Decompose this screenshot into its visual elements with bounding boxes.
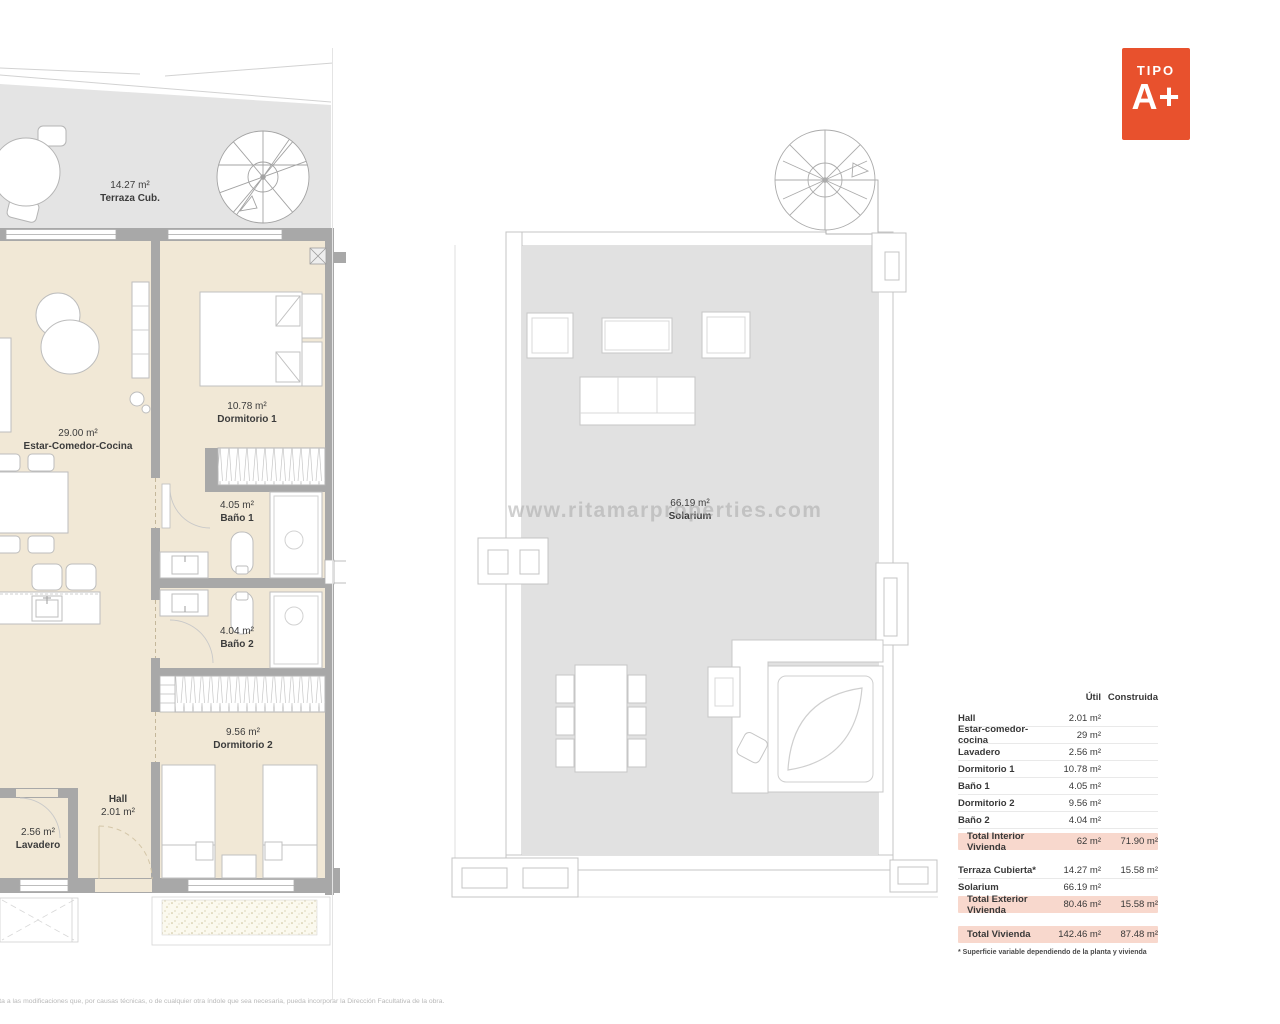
room-name: Dormitorio 2 <box>213 739 272 752</box>
disclaimer-text: jeta a las modificaciones que, por causa… <box>0 998 444 1005</box>
table-row-estar: Estar-comedor-cocina 29 m² <box>958 727 1158 744</box>
jacuzzi-outer <box>768 666 883 792</box>
room-label-bano2: 4.04 m² Baño 2 <box>220 625 254 651</box>
surface-table-header: Útil Construida <box>958 692 1158 705</box>
room-name: Terraza Cub. <box>100 192 160 205</box>
bath-door-leaf <box>162 484 170 528</box>
apartment-plan <box>0 63 346 945</box>
total-exterior-row: Total Exterior Vivienda 80.46 m² 15.58 m… <box>958 896 1158 913</box>
dorm2-wardrobe <box>160 676 325 712</box>
room-name: Estar-Comedor-Cocina <box>24 440 133 453</box>
room-name: Lavadero <box>16 839 60 852</box>
table-row-terraza: Terraza Cubierta* 14.27 m² 15.58 m² <box>958 862 1158 879</box>
col-util: Útil <box>1053 692 1101 705</box>
garden-bed <box>152 897 330 945</box>
type-badge: TIPO A+ <box>1122 48 1190 140</box>
surface-table: Útil Construida Hall 2.01 m² Estar-comed… <box>958 692 1158 956</box>
type-badge-letter: A+ <box>1122 78 1190 116</box>
room-name: Baño 2 <box>220 638 254 651</box>
spiral-stair-terrace <box>217 131 309 223</box>
table-row-dormitorio1: Dormitorio 1 10.78 m² <box>958 761 1158 778</box>
table-row-lavadero: Lavadero 2.56 m² <box>958 744 1158 761</box>
table-row-bano1: Baño 1 4.05 m² <box>958 778 1158 795</box>
room-area: 2.56 m² <box>16 826 60 839</box>
entry-opening <box>95 879 152 892</box>
room-area: 29.00 m² <box>24 427 133 440</box>
lower-terrace <box>0 898 78 942</box>
room-area: 2.01 m² <box>101 806 135 819</box>
room-label-dormitorio2: 9.56 m² Dormitorio 2 <box>213 726 272 752</box>
spiral-stair-solarium <box>775 130 878 234</box>
table-row-dormitorio2: Dormitorio 2 9.56 m² <box>958 795 1158 812</box>
room-label-terraza: 14.27 m² Terraza Cub. <box>100 179 160 205</box>
lavadero-opening <box>16 789 58 797</box>
total-interior-row: Total Interior Vivienda 62 m² 71.90 m² <box>958 833 1158 850</box>
watermark: www.ritamarproperties.com <box>508 499 822 523</box>
table-footnote: * Superficie variable dependiendo de la … <box>958 949 1158 956</box>
room-area: 9.56 m² <box>213 726 272 739</box>
room-area: 14.27 m² <box>100 179 160 192</box>
room-label-hall: Hall 2.01 m² <box>101 793 135 819</box>
total-vivienda-row: Total Vivienda 142.46 m² 87.48 m² <box>958 926 1158 943</box>
table-row-bano2: Baño 2 4.04 m² <box>958 812 1158 829</box>
room-label-lavadero: 2.56 m² Lavadero <box>16 826 60 852</box>
room-name: Dormitorio 1 <box>217 413 276 426</box>
room-area: 4.05 m² <box>220 499 254 512</box>
col-construida: Construida <box>1101 692 1158 705</box>
dorm1-wardrobe <box>218 448 325 485</box>
room-area: 10.78 m² <box>217 400 276 413</box>
shaft-square <box>310 248 326 264</box>
room-name: Hall <box>101 793 135 806</box>
plot-boundary-line <box>332 48 333 1000</box>
room-label-dormitorio1: 10.78 m² Dormitorio 1 <box>217 400 276 426</box>
floorplan-page: 14.27 m² Terraza Cub. 29.00 m² Estar-Com… <box>0 0 1280 1024</box>
room-label-estar: 29.00 m² Estar-Comedor-Cocina <box>24 427 133 453</box>
solarium-dining <box>556 665 646 772</box>
room-area: 4.04 m² <box>220 625 254 638</box>
room-name: Baño 1 <box>220 512 254 525</box>
room-label-bano1: 4.05 m² Baño 1 <box>220 499 254 525</box>
